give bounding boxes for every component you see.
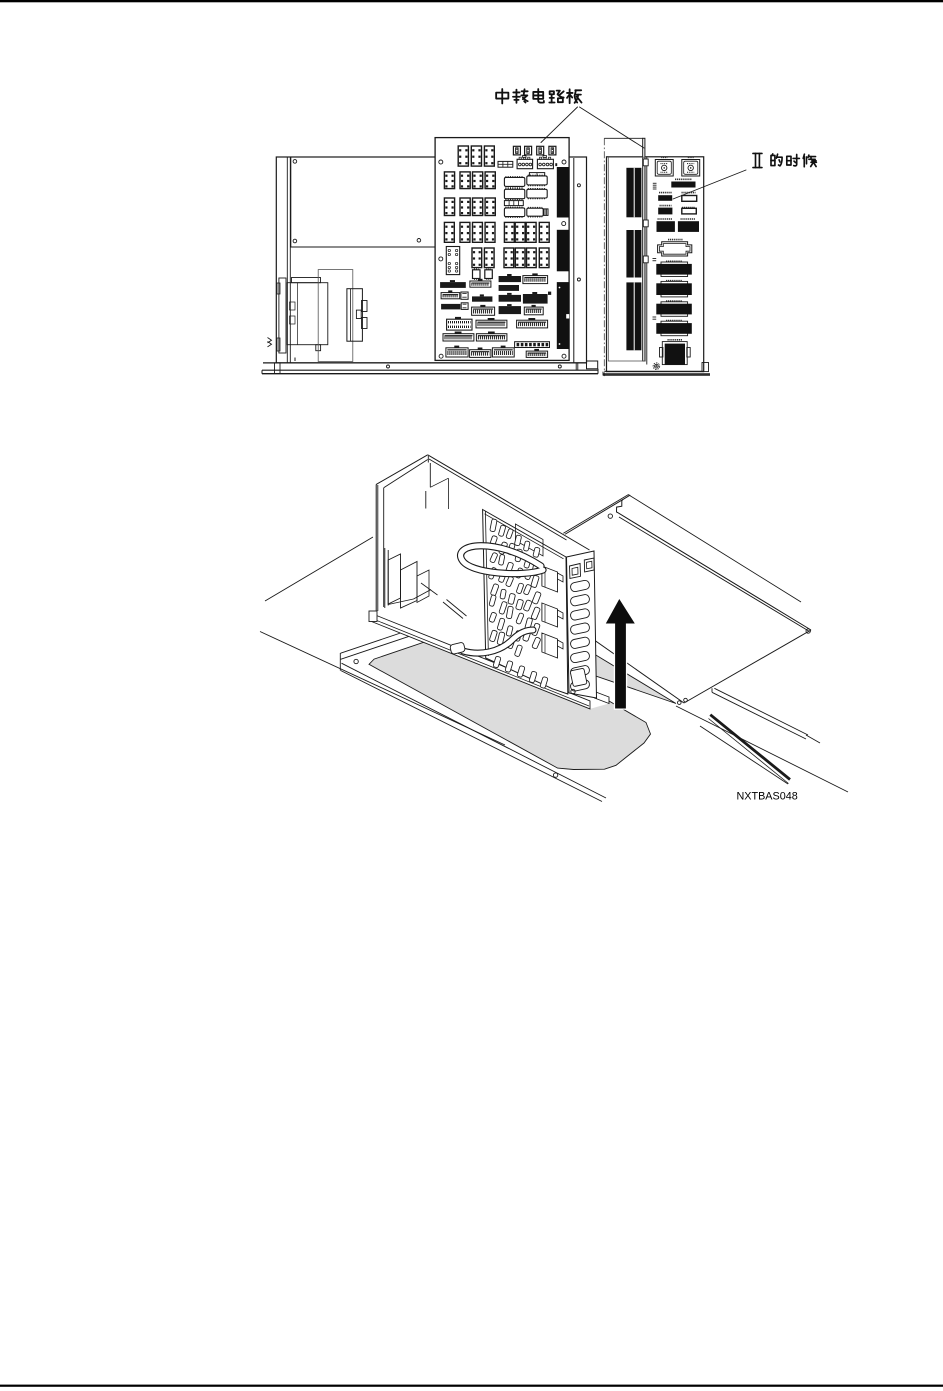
svg-text:NXTBAS048: NXTBAS048 bbox=[737, 791, 798, 803]
